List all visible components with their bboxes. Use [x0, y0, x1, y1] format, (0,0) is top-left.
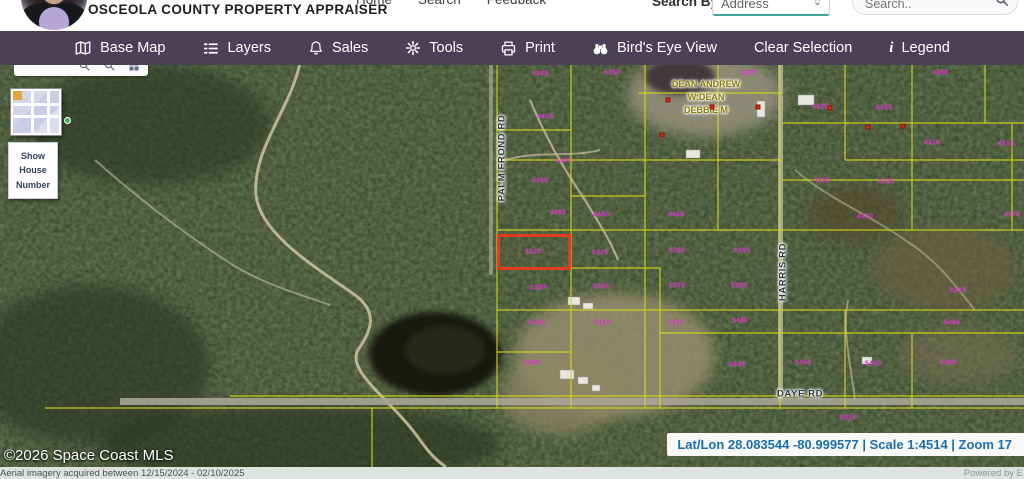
sale-marker[interactable]: [901, 124, 906, 129]
toolbar-layers[interactable]: Layers: [202, 40, 271, 57]
zoom-out-icon[interactable]: [103, 65, 116, 76]
parcel-number: 5230: [525, 249, 541, 256]
appraiser-portrait-logo: [21, 0, 87, 30]
site-title: OSCEOLA COUNTY PROPERTY APPRAISER: [88, 2, 388, 17]
toolbar-legend[interactable]: i Legend: [889, 40, 950, 57]
imagery-date-note: Aerial imagery acquired between 12/15/20…: [0, 468, 245, 479]
parcel-number: 5245: [592, 250, 608, 257]
map-icon: [74, 39, 92, 57]
parcel-number: 5255: [734, 248, 750, 255]
toolbar-label: Print: [525, 40, 555, 56]
gps-location-dot: [64, 117, 71, 124]
parcel-number: 5480: [732, 318, 748, 325]
toolbar-clear-selection[interactable]: Clear Selection: [754, 40, 852, 56]
gear-icon: [405, 40, 421, 56]
toolbar-label: Clear Selection: [754, 40, 852, 56]
zoom-in-icon[interactable]: [78, 65, 91, 76]
parcel-number: 4420: [812, 104, 828, 111]
parcel-number: 4360: [932, 70, 948, 77]
parcel-number: 5495: [940, 360, 956, 367]
layers-icon: [202, 40, 219, 57]
toolbar-label: Tools: [429, 40, 463, 56]
app-header: OSCEOLA COUNTY PROPERTY APPRAISER Home S…: [0, 0, 1024, 31]
parcel-number: 4410: [537, 114, 553, 121]
status-bar: Lat/Lon 28.083544 -80.999577 | Scale 1:4…: [667, 433, 1024, 456]
parcel-number: 4350: [604, 70, 620, 77]
toolbar-sales[interactable]: Sales: [308, 40, 368, 56]
parcel-number: 4450: [532, 178, 548, 185]
toolbar-tools[interactable]: Tools: [405, 40, 463, 56]
nav-home[interactable]: Home: [356, 0, 392, 7]
mls-copyright: ©2026 Space Coast MLS: [4, 447, 173, 464]
parcel-number: 5250: [669, 248, 685, 255]
owner-line: DEAN ANDREW: [672, 78, 740, 91]
bell-icon: [308, 40, 324, 56]
sale-marker[interactable]: [666, 98, 671, 103]
search-by-value: Address: [721, 0, 769, 11]
printer-icon: [500, 40, 517, 57]
parcel-number: 5440: [729, 362, 745, 369]
toolbar-label: Legend: [901, 40, 949, 56]
road-label: HARRIS RD: [778, 243, 789, 301]
toolbar-label: Sales: [332, 40, 368, 56]
parcel-number: 4330: [814, 178, 830, 185]
owner-line: DEBBIE M: [672, 104, 740, 117]
parcel-number: 5375: [950, 288, 966, 295]
parcel-number: 4345: [532, 71, 548, 78]
search-icon[interactable]: [995, 0, 1009, 12]
chevron-updown-icon: [812, 0, 823, 11]
toolbar-base-map[interactable]: Base Map: [74, 39, 165, 57]
map-toolbar: Base Map Layers Sales Tools Print Bird's…: [0, 31, 1024, 65]
parcel-number: 5810: [840, 415, 856, 422]
parcel-number: 4440: [555, 158, 571, 165]
show-house-number-button[interactable]: Show House Number: [8, 142, 58, 199]
parcel-number: 4310: [924, 140, 940, 147]
parcel-number: 4465: [668, 212, 684, 219]
owner-name-label: DEAN ANDREW W;DEAN DEBBIE M: [672, 78, 740, 117]
powered-by-note: Powered by E: [964, 468, 1023, 479]
search-input[interactable]: [865, 0, 985, 11]
parcel-number: 5410: [594, 320, 610, 327]
parcel-number: 5470: [668, 320, 684, 327]
parcel-number: 4470: [857, 214, 873, 221]
owner-line: W;DEAN: [672, 91, 740, 104]
toolbar-label: Base Map: [100, 40, 165, 56]
parcel-number: 5320: [731, 283, 747, 290]
overview-highlight-block: [13, 91, 22, 100]
road-label: PALM FROND RD: [497, 115, 508, 202]
parcel-number: 4425: [876, 105, 892, 112]
parcel-number: 5450: [795, 360, 811, 367]
sale-marker[interactable]: [866, 125, 871, 130]
sale-marker[interactable]: [660, 133, 665, 138]
parcel-number: 4475: [1004, 212, 1020, 219]
basemap-gallery-icon[interactable]: [128, 65, 140, 76]
search-box: [852, 0, 1018, 15]
toolbar-print[interactable]: Print: [500, 40, 555, 57]
parcel-number: 5485: [944, 320, 960, 327]
parcel-number: 5400: [529, 320, 545, 327]
top-nav: Home Search Feedback: [356, 0, 546, 7]
parcel-number: 4335: [878, 179, 894, 186]
search-by-select[interactable]: Address: [712, 0, 830, 16]
parcel-number: 4315: [998, 141, 1014, 148]
overview-map-widget[interactable]: [10, 88, 62, 136]
parcel-number: 4460: [593, 212, 609, 219]
sale-marker[interactable]: [756, 105, 761, 110]
toolbar-birds-eye-view[interactable]: Bird's Eye View: [592, 40, 717, 57]
latlon-scale-zoom-readout: Lat/Lon 28.083544 -80.999577 | Scale 1:4…: [677, 437, 1012, 452]
toolbar-label: Bird's Eye View: [617, 40, 717, 56]
map-canvas[interactable]: Show House Number DEAN ANDREW W;DEAN DEB…: [0, 65, 1024, 467]
parcel-number: 5300: [593, 284, 609, 291]
toolbar-label: Layers: [227, 40, 271, 56]
map-zoom-toolbar: [14, 65, 148, 76]
imagery-footer: Aerial imagery acquired between 12/15/20…: [0, 467, 1024, 479]
parcel-number: 5290: [530, 285, 546, 292]
parcel-number: 5490: [865, 361, 881, 368]
nav-feedback[interactable]: Feedback: [487, 0, 546, 7]
search-by-label: Search By: [652, 0, 718, 9]
parcel-number: 5460: [524, 360, 540, 367]
nav-search[interactable]: Search: [418, 0, 461, 7]
info-icon: i: [889, 40, 893, 57]
sale-marker[interactable]: [828, 106, 833, 111]
parcel-number: 4455: [550, 210, 566, 217]
road-label: DAYE RD: [777, 389, 823, 400]
parcel-number: 5370: [669, 283, 685, 290]
parcel-number: 4355: [740, 70, 756, 77]
sale-marker[interactable]: [710, 105, 715, 110]
binoculars-icon: [592, 40, 609, 57]
